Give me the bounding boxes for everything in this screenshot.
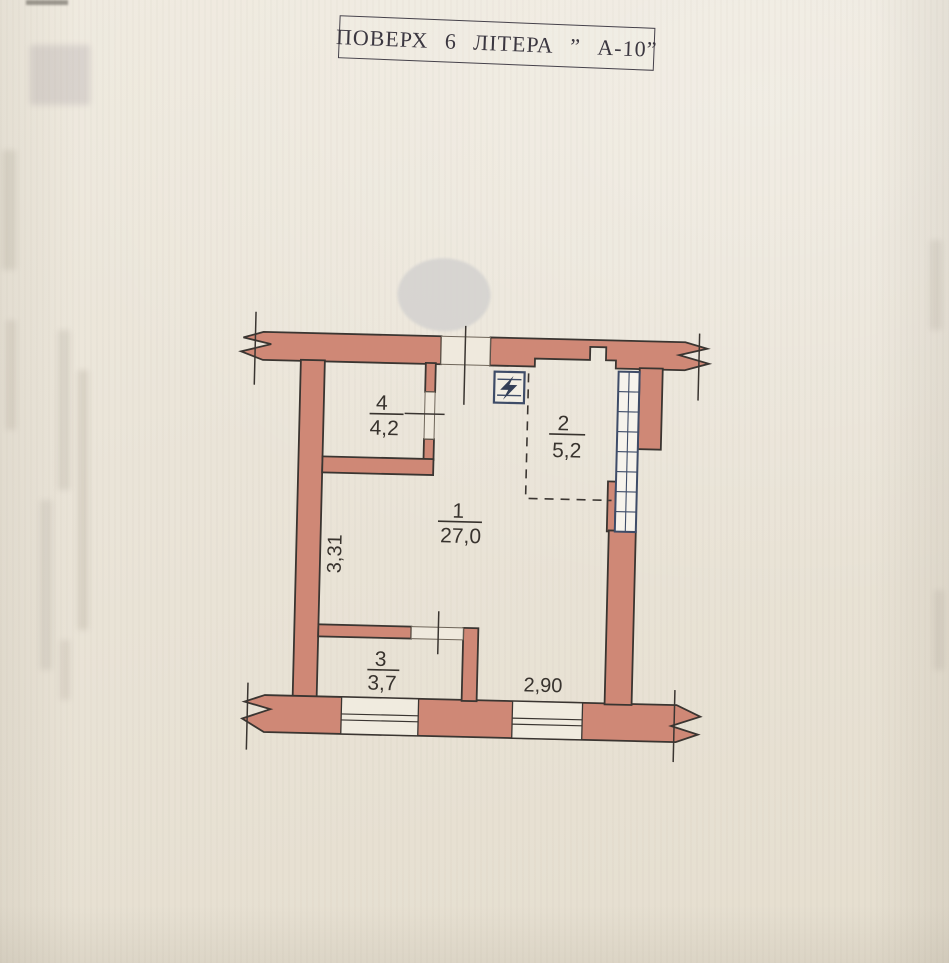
window-room1 <box>512 701 583 740</box>
room2-dashed-boundary <box>526 373 615 500</box>
dimension-bottom-wall: 2,90 <box>523 674 562 697</box>
right-upper-wall <box>638 368 663 450</box>
dimension-left-wall: 3,31 <box>324 534 347 573</box>
room3-area: 3,7 <box>367 672 397 696</box>
break-line-bottom-right <box>673 690 675 762</box>
title-box: ПОВЕРХ 6 ЛІТЕРА ” А-10” <box>338 15 655 71</box>
room4-bottom-wall <box>322 456 433 475</box>
room4-door-opening <box>424 392 435 439</box>
room3-number: 3 <box>374 648 386 671</box>
room4-right-wall-bottom <box>423 439 434 460</box>
top-wall-right <box>490 337 710 370</box>
page-title: ПОВЕРХ 6 ЛІТЕРА ” А-10” <box>335 24 657 63</box>
room1-label: 1 27,0 <box>437 499 482 548</box>
room4-number: 4 <box>376 392 389 415</box>
right-lower-wall <box>605 530 636 705</box>
room4-area: 4,2 <box>369 417 399 441</box>
room2-area: 5,2 <box>552 439 582 463</box>
electrical-panel-icon <box>494 372 525 404</box>
room3-label: 3 3,7 <box>367 648 400 696</box>
room4-label: 4 4,2 <box>369 392 404 441</box>
room3-right-wall <box>462 628 479 701</box>
room2-number: 2 <box>557 412 569 435</box>
room2-label: 2 5,2 <box>548 412 585 463</box>
drawing-sheet: ПОВЕРХ 6 ЛІТЕРА ” А-10” <box>0 0 949 963</box>
left-wall <box>293 360 325 698</box>
floor-plan-drawing: 1 27,0 2 5,2 3 3,7 4 4,2 3,31 2,90 <box>223 294 714 776</box>
window-room3 <box>341 697 419 736</box>
scanned-floor-plan-photo: ПОВЕРХ 6 ЛІТЕРА ” А-10” <box>0 0 949 963</box>
room4-right-wall-top <box>425 363 436 392</box>
room3-top-wall <box>318 624 411 638</box>
room3-door-opening <box>411 627 463 640</box>
room1-number: 1 <box>452 500 464 523</box>
room1-area: 27,0 <box>440 524 481 548</box>
room3-door-tick <box>438 611 439 654</box>
top-wall-left <box>241 331 442 364</box>
room4-door-tick <box>405 413 445 414</box>
break-line-top-right <box>698 334 700 401</box>
break-line-top-left <box>254 312 256 385</box>
balcony-glazing <box>615 372 640 532</box>
break-line-bottom-left <box>246 683 248 750</box>
